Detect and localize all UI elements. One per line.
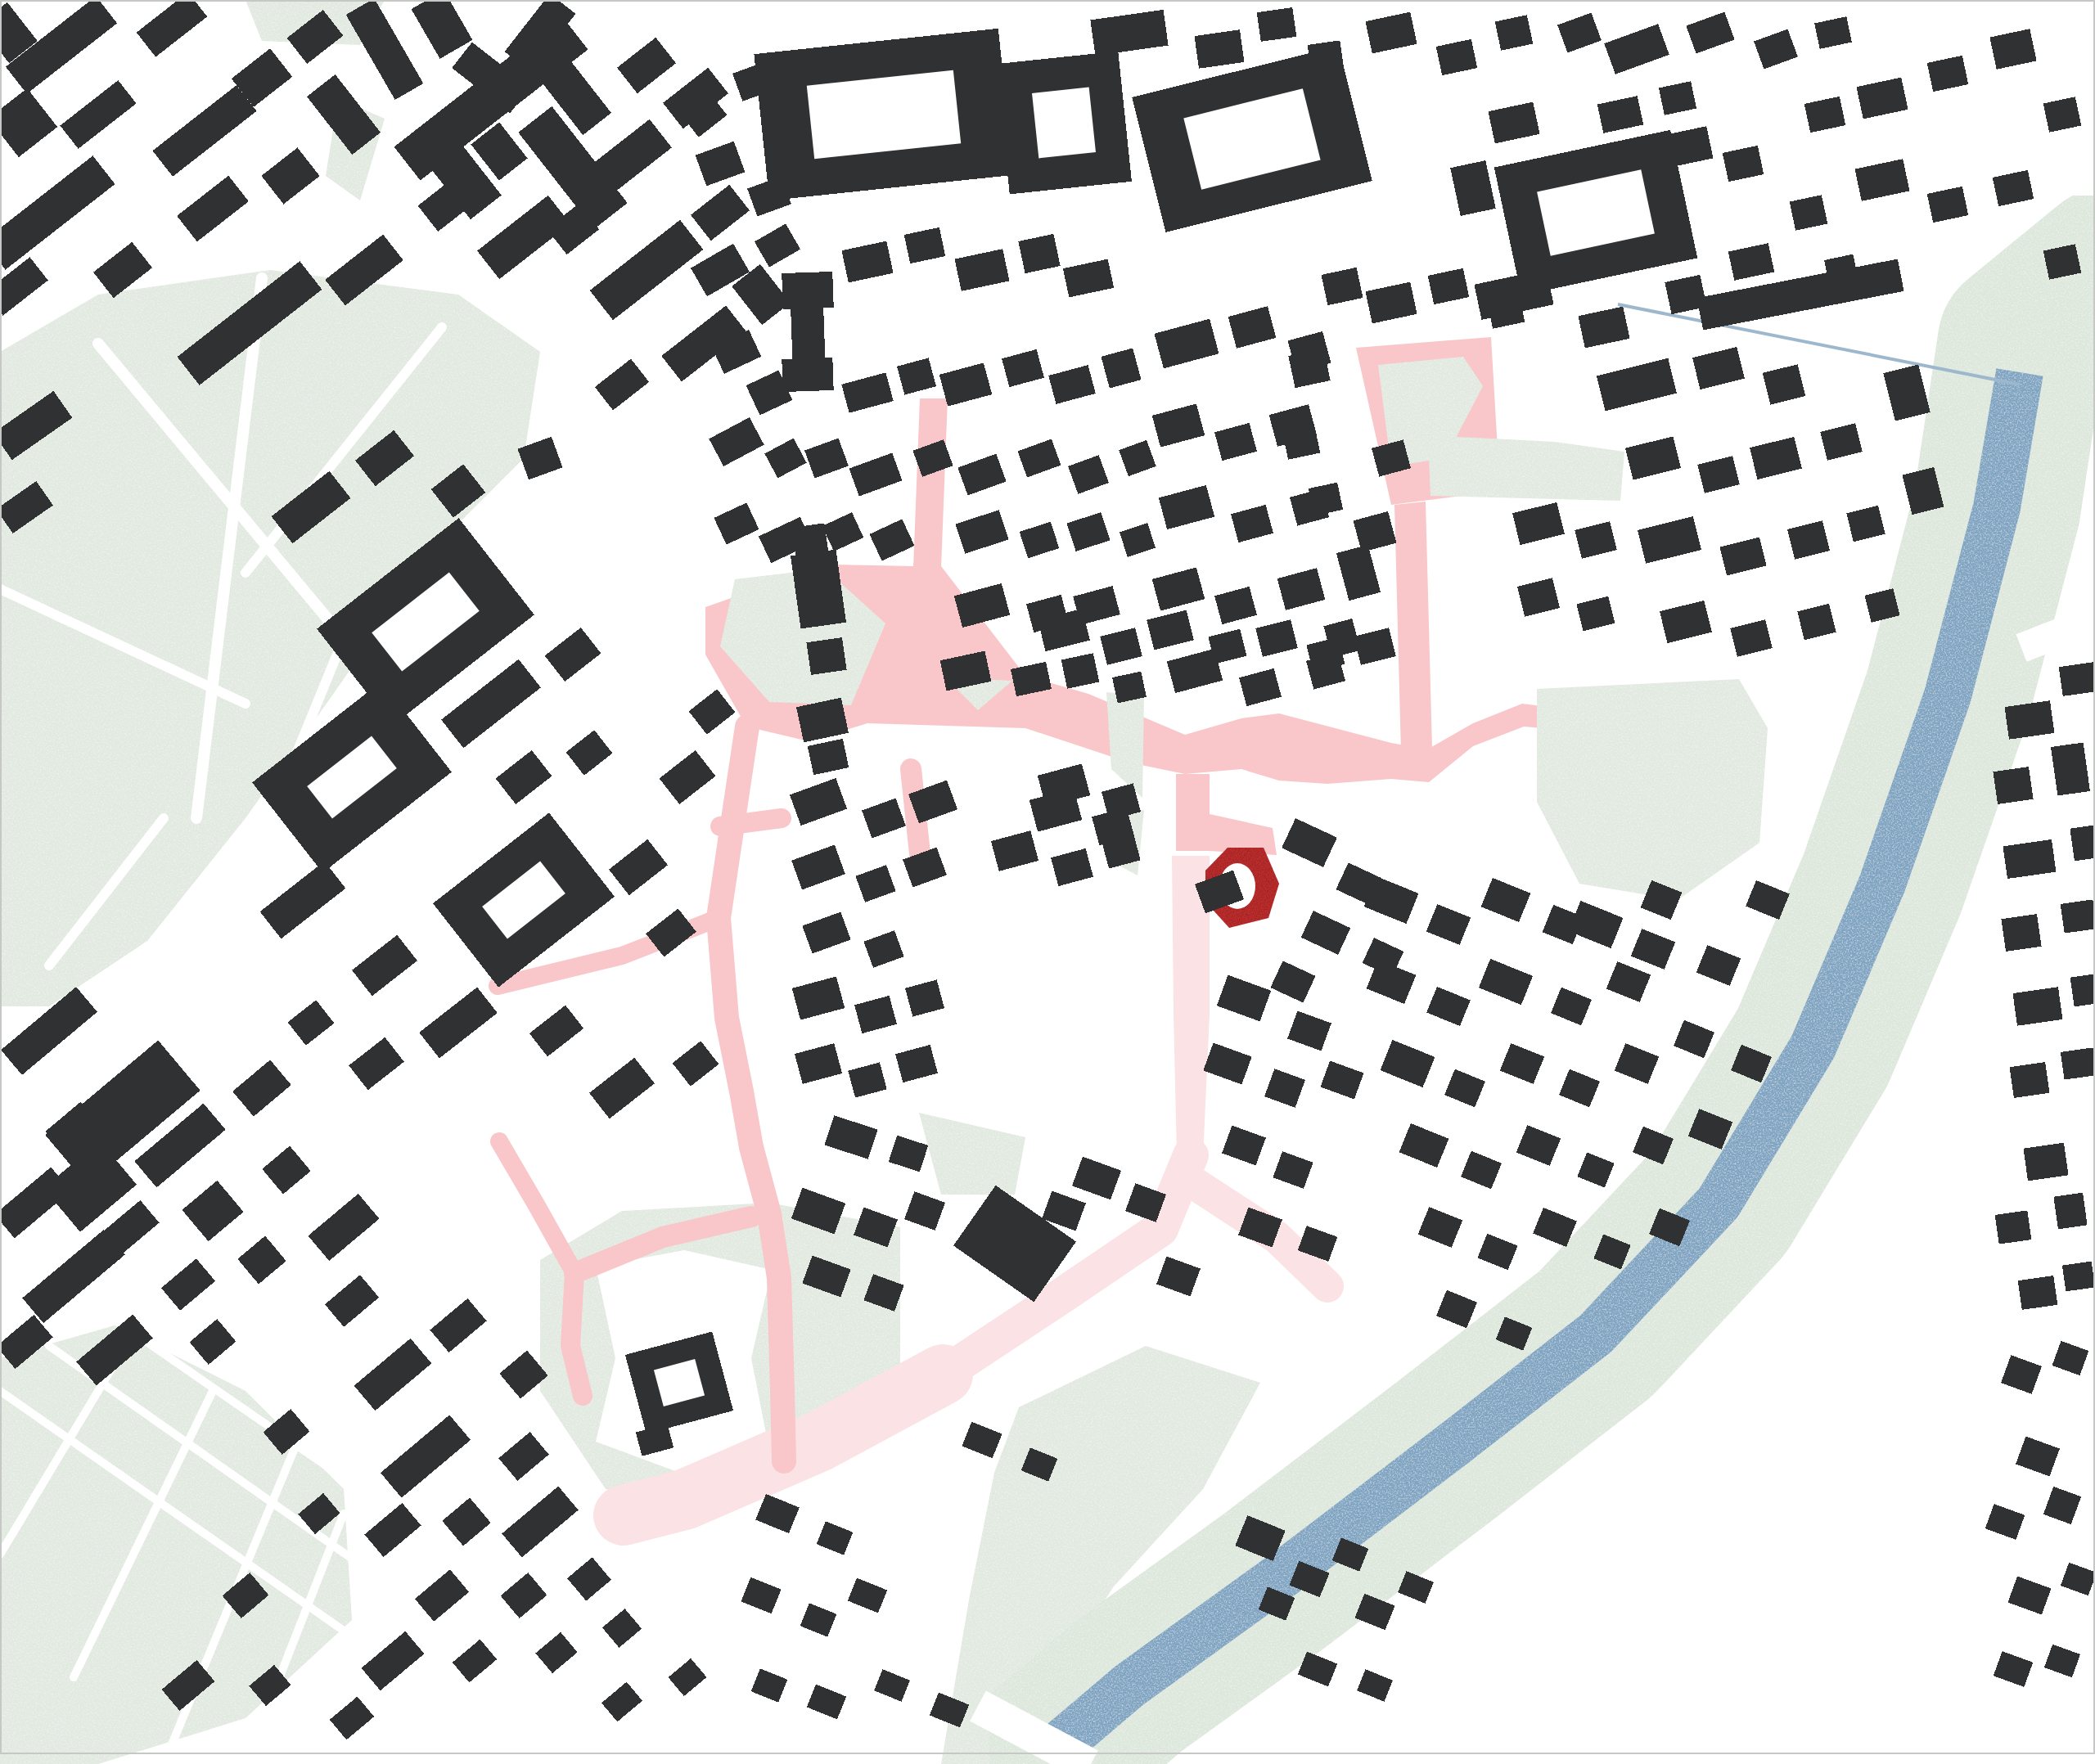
courtyard — [807, 70, 961, 159]
building-footprint — [2051, 743, 2090, 796]
building-footprint — [806, 637, 846, 675]
building-footprint — [2010, 1062, 2050, 1098]
primary-route-segment — [720, 818, 782, 826]
building-footprint — [1257, 7, 1297, 42]
building-footprint — [2003, 839, 2057, 879]
building-footprint — [782, 358, 833, 392]
primary-route-segment — [570, 1273, 583, 1396]
building-footprint — [791, 292, 826, 362]
building-footprint — [1993, 767, 2033, 804]
building-footprint — [2004, 700, 2054, 739]
building-footprint — [1194, 29, 1244, 68]
figure-ground-map[interactable] — [0, 0, 2095, 1764]
primary-route-segment — [1394, 502, 1432, 753]
building-footprint — [2061, 899, 2095, 933]
building-footprint — [1995, 1210, 2032, 1244]
building-footprint — [2070, 974, 2095, 1007]
building-footprint — [2059, 662, 2095, 696]
building-footprint — [2018, 1276, 2058, 1310]
courtyard — [1032, 88, 1096, 159]
building-footprint — [2061, 1047, 2095, 1079]
building-footprint — [2012, 987, 2062, 1025]
building-footprint — [2053, 1193, 2087, 1230]
building-footprint — [792, 523, 829, 556]
building-footprint — [2062, 1262, 2095, 1292]
building-footprint — [2001, 914, 2041, 952]
map-viewport[interactable] — [0, 0, 2095, 1764]
building-footprint — [2023, 1143, 2068, 1181]
